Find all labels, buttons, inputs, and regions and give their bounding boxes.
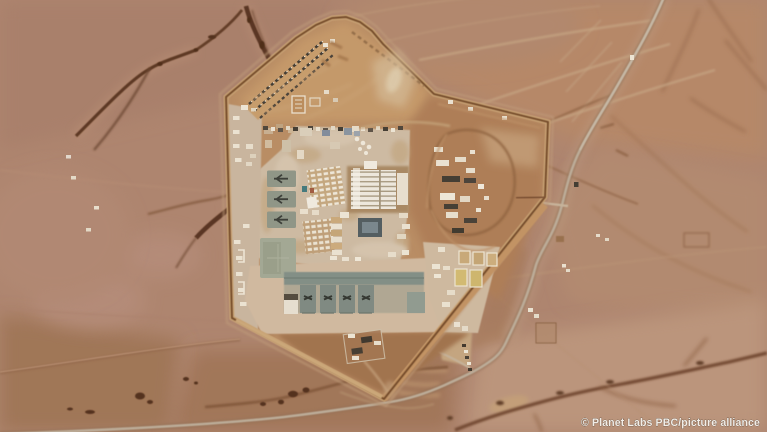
svg-text:© Planet Labs PBC/picture alli: © Planet Labs PBC/picture alliance	[581, 417, 760, 429]
